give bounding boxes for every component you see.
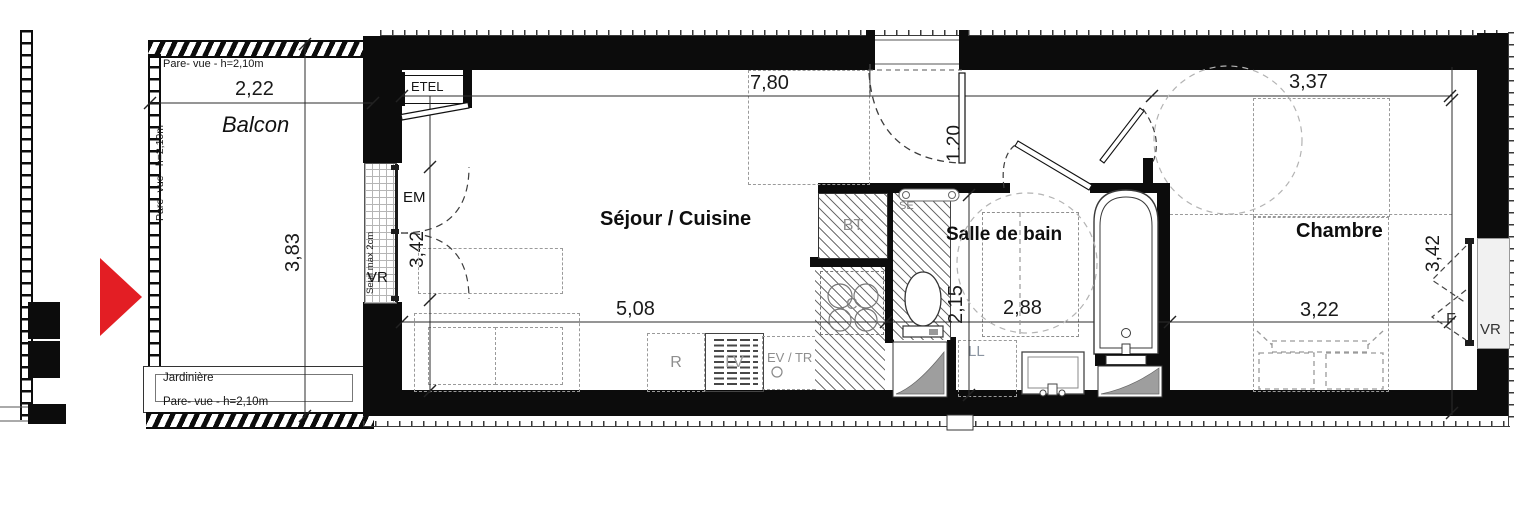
balcony-width-dim: 2,22 xyxy=(235,78,274,101)
cooktop-label: C xyxy=(846,296,858,314)
bedroom-bottom-dim: 3,22 xyxy=(1300,299,1339,322)
duct-zone xyxy=(893,193,951,340)
wall-bottom xyxy=(363,390,1480,416)
bt-box: BT xyxy=(818,193,888,259)
etel-door-leaf xyxy=(401,103,469,121)
bt-label: BT xyxy=(843,217,863,235)
bedroom-window-glazing xyxy=(1468,239,1472,346)
fridge-box: R xyxy=(647,333,705,392)
etel-jamb-right xyxy=(463,68,472,108)
left-pier-block-3 xyxy=(28,404,66,424)
etel-jamb-left xyxy=(399,72,405,106)
wall-top-right xyxy=(968,36,1480,70)
entry-jamb-right xyxy=(959,30,968,70)
site-line-right xyxy=(1508,32,1514,426)
pare-vue-bottom-note: Pare- vue - h=2,10m xyxy=(163,396,268,408)
towel-rail-label: SE xyxy=(899,200,914,212)
vr-left-label: VR xyxy=(367,269,388,286)
bathroom-door xyxy=(1003,141,1092,190)
window-handle-2 xyxy=(391,229,399,234)
window-handle-1 xyxy=(391,165,399,170)
sink-box: EV / TR xyxy=(762,336,820,390)
bedroom-right-dim: 3,42 xyxy=(1424,202,1443,272)
counter-module-2 xyxy=(495,327,563,385)
pare-vue-left-note: Pare- vue - h=2,10m xyxy=(155,103,166,221)
sink-label: EV / TR xyxy=(767,350,812,365)
vr-right-label: VR xyxy=(1480,321,1501,338)
wall-bath-bedroom xyxy=(1157,183,1170,397)
living-bottom-dim: 5,08 xyxy=(616,298,655,321)
left-pier-block-1 xyxy=(28,302,60,339)
pare-vue-top-screen xyxy=(148,40,370,58)
entry-door-dim: 1,20 xyxy=(945,102,964,162)
pare-vue-top-note: Pare- vue - h=2,10m xyxy=(163,58,264,70)
jardiniere-label: Jardinière xyxy=(163,372,214,384)
wall-top-left xyxy=(363,36,866,70)
fridge-label: R xyxy=(670,354,682,372)
wall-bedroom-door-stub xyxy=(1143,158,1153,186)
window-handle-3 xyxy=(391,296,399,301)
duct-shaft-left xyxy=(893,342,947,397)
wall-left-lower xyxy=(363,302,402,392)
floor-plan: Pare- vue - h=2,10m Pare- vue - h=2,10m … xyxy=(0,0,1521,526)
bedroom-dash-line xyxy=(1170,214,1452,215)
wall-right-upper xyxy=(1477,33,1508,238)
balcony-depth-dim: 3,83 xyxy=(283,208,303,272)
bedroom-window-frame-top xyxy=(1465,238,1474,244)
living-top-dim: 7,80 xyxy=(750,72,789,95)
bathroom-label: Salle de bain xyxy=(946,224,1062,246)
bedroom-door xyxy=(1100,108,1156,164)
washer-box xyxy=(958,340,1017,397)
bedroom-label: Chambre xyxy=(1296,220,1383,243)
etel-label: ETEL xyxy=(411,79,444,94)
bedroom-top-dim: 3,37 xyxy=(1289,71,1328,94)
wall-bath-stub xyxy=(947,337,956,397)
wardrobe-outline xyxy=(1253,98,1390,217)
wall-right-lower xyxy=(1477,347,1508,416)
bedroom-window-frame-bottom xyxy=(1465,340,1474,346)
dishwasher-label: LV xyxy=(725,354,743,372)
entry-arrow-icon xyxy=(100,258,142,336)
balcony-label: Balcon xyxy=(222,112,289,138)
site-line-bottom xyxy=(363,421,1510,427)
counter-module-1 xyxy=(428,327,496,385)
living-label: Séjour / Cuisine xyxy=(600,208,751,231)
window-f-label: F xyxy=(1446,311,1456,329)
bathroom-depth-dim: 2,15 xyxy=(946,258,966,324)
bathtub-icon xyxy=(1094,190,1158,358)
dishwasher-box: LV xyxy=(705,333,764,392)
left-pier-block-2 xyxy=(28,341,60,378)
pare-vue-bottom-screen xyxy=(146,412,374,429)
sofa-outline xyxy=(418,248,563,294)
entry-jamb-left xyxy=(866,30,875,70)
bathroom-width-dim: 2,88 xyxy=(1003,297,1042,320)
washer-label: LL xyxy=(968,343,985,360)
